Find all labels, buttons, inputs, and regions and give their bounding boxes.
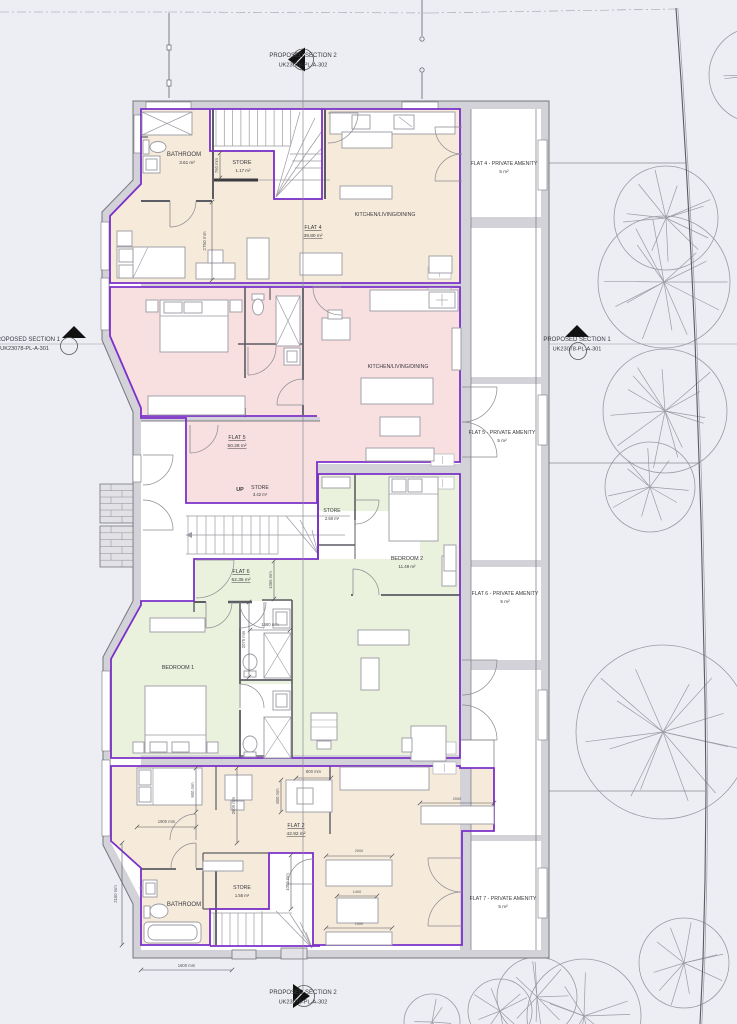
svg-text:PROPOSED SECTION 2: PROPOSED SECTION 2: [269, 53, 337, 59]
svg-text:UK23078-PL-A-302: UK23078-PL-A-302: [279, 63, 328, 69]
svg-text:2000: 2000: [355, 849, 363, 853]
svg-text:1.55 m²: 1.55 m²: [235, 893, 250, 898]
svg-text:PROPOSED SECTION 1: PROPOSED SECTION 1: [0, 337, 61, 343]
svg-text:11.49 m²: 11.49 m²: [398, 564, 416, 569]
svg-text:UK23078-PL-A-301: UK23078-PL-A-301: [553, 347, 602, 353]
svg-text:3.61 m²: 3.61 m²: [179, 160, 195, 165]
svg-text:FLAT 6 - PRIVATE AMENITY: FLAT 6 - PRIVATE AMENITY: [472, 591, 539, 597]
svg-text:BEDROOM 1: BEDROOM 1: [162, 665, 194, 671]
svg-text:800 mm: 800 mm: [306, 769, 322, 774]
svg-text:UK23078-PL-A-302: UK23078-PL-A-302: [279, 1000, 328, 1006]
svg-text:1066 mm: 1066 mm: [268, 571, 273, 589]
svg-text:2.60 m²: 2.60 m²: [325, 516, 340, 521]
svg-text:KITCHEN/LIVING/DINING: KITCHEN/LIVING/DINING: [368, 364, 429, 370]
svg-text:PROPOSED SECTION 2: PROPOSED SECTION 2: [269, 990, 337, 996]
svg-text:UK23078-PL-A-301: UK23078-PL-A-301: [0, 346, 49, 352]
svg-text:1400: 1400: [353, 890, 361, 894]
svg-text:5 m²: 5 m²: [498, 904, 508, 909]
svg-text:FLAT 7 - PRIVATE AMENITY: FLAT 7 - PRIVATE AMENITY: [470, 896, 537, 902]
svg-text:KITCHEN/LIVING/DINING: KITCHEN/LIVING/DINING: [355, 212, 416, 218]
svg-text:39.80 m²: 39.80 m²: [304, 233, 323, 239]
svg-text:FLAT 2: FLAT 2: [287, 823, 304, 829]
svg-text:PROPOSED SECTION 1: PROPOSED SECTION 1: [543, 337, 611, 343]
svg-text:1500: 1500: [355, 922, 363, 926]
svg-text:STORE: STORE: [251, 485, 269, 491]
svg-text:2750 mm: 2750 mm: [202, 231, 207, 250]
svg-text:STORE: STORE: [323, 508, 341, 514]
svg-text:5 m²: 5 m²: [499, 169, 509, 174]
svg-text:760 mm: 760 mm: [214, 157, 219, 173]
svg-text:UP: UP: [236, 487, 244, 493]
svg-text:FLAT 4: FLAT 4: [304, 225, 321, 231]
svg-text:BATHROOM: BATHROOM: [167, 902, 201, 908]
svg-text:2000: 2000: [453, 797, 461, 801]
svg-text:2150 mm: 2150 mm: [113, 885, 118, 903]
svg-text:800 mm: 800 mm: [275, 788, 280, 804]
svg-text:FLAT 5: FLAT 5: [228, 435, 245, 441]
svg-text:1900 mm: 1900 mm: [158, 819, 176, 824]
svg-text:5 m²: 5 m²: [497, 438, 507, 443]
svg-text:STORE: STORE: [233, 885, 251, 891]
svg-text:STORE: STORE: [232, 160, 251, 166]
svg-text:FLAT 6: FLAT 6: [232, 569, 249, 575]
svg-text:3.42 m²: 3.42 m²: [253, 492, 268, 497]
svg-text:42.92 m²: 42.92 m²: [287, 831, 306, 837]
svg-text:1050 mm: 1050 mm: [285, 873, 290, 891]
svg-text:50.28 m²: 50.28 m²: [228, 443, 247, 449]
svg-text:FLAT 5 - PRIVATE AMENITY: FLAT 5 - PRIVATE AMENITY: [469, 430, 536, 436]
svg-text:900 mm: 900 mm: [190, 782, 195, 798]
svg-text:2075 mm: 2075 mm: [241, 630, 246, 648]
svg-text:FLAT 4 - PRIVATE AMENITY: FLAT 4 - PRIVATE AMENITY: [471, 161, 538, 167]
svg-text:1.17 m²: 1.17 m²: [236, 168, 251, 173]
svg-text:BATHROOM: BATHROOM: [167, 152, 201, 158]
svg-text:2600 mm: 2600 mm: [231, 796, 236, 814]
svg-text:1600 mm: 1600 mm: [178, 963, 196, 968]
svg-text:BEDROOM 2: BEDROOM 2: [391, 556, 423, 562]
svg-text:5 m²: 5 m²: [500, 599, 510, 604]
svg-text:1580 mm: 1580 mm: [261, 622, 279, 627]
svg-text:62.35 m²: 62.35 m²: [232, 577, 251, 583]
